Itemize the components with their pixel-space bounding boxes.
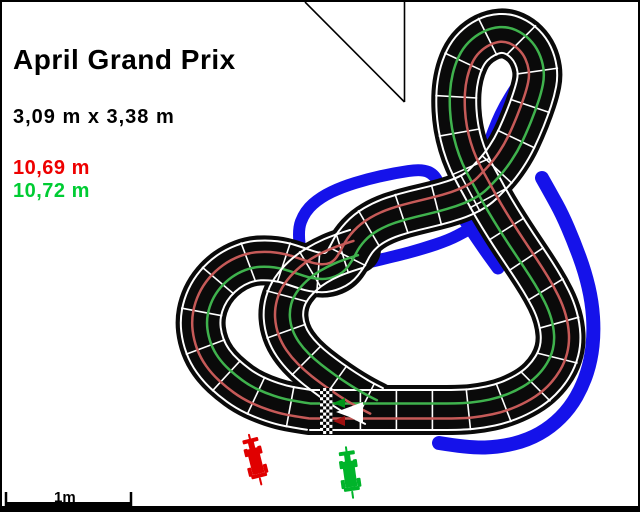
red-car-icon	[239, 431, 271, 487]
checker-cell	[329, 403, 332, 406]
checker-cell	[326, 425, 329, 428]
checker-cell	[320, 425, 323, 428]
checker-cell	[320, 431, 323, 434]
checker-cell	[326, 419, 329, 422]
red-lane-length: 10,69 m	[13, 158, 90, 178]
checker-cell	[323, 422, 326, 425]
page-bottom-border	[2, 506, 638, 510]
green-car-icon	[336, 445, 363, 500]
checker-cell	[326, 388, 329, 391]
scalebar-label: 1m	[54, 489, 76, 506]
checker-cell	[323, 403, 326, 406]
checker-cell	[323, 397, 326, 400]
checker-cell	[323, 391, 326, 394]
track-plan-canvas: 1m	[2, 2, 640, 512]
checker-cell	[329, 397, 332, 400]
checker-cell	[326, 400, 329, 403]
green-lane-length: 10,72 m	[13, 181, 90, 201]
checker-cell	[320, 419, 323, 422]
checker-cell	[320, 406, 323, 409]
checker-cell	[326, 431, 329, 434]
track-plan-page: 1m April Grand Prix 3,09 m x 3,38 m 10,6…	[0, 0, 640, 512]
checker-cell	[323, 409, 326, 412]
checker-cell	[326, 394, 329, 397]
checker-cell	[326, 413, 329, 416]
checker-cell	[326, 406, 329, 409]
checker-cell	[329, 422, 332, 425]
page-title: April Grand Prix	[13, 46, 236, 74]
track-surface-main-lap	[201, 33, 561, 410]
checker-cell	[320, 413, 323, 416]
checker-cell	[323, 428, 326, 431]
checker-cell	[320, 394, 323, 397]
sheet-fold-diagonal	[305, 2, 405, 102]
layout-dimensions: 3,09 m x 3,38 m	[13, 107, 175, 127]
checker-cell	[320, 400, 323, 403]
car-part	[351, 491, 354, 499]
checker-cell	[320, 388, 323, 391]
car-part	[259, 477, 263, 485]
checker-cell	[329, 428, 332, 431]
checker-cell	[323, 416, 326, 419]
checker-cell	[329, 416, 332, 419]
checker-cell	[329, 391, 332, 394]
checker-cell	[329, 409, 332, 412]
